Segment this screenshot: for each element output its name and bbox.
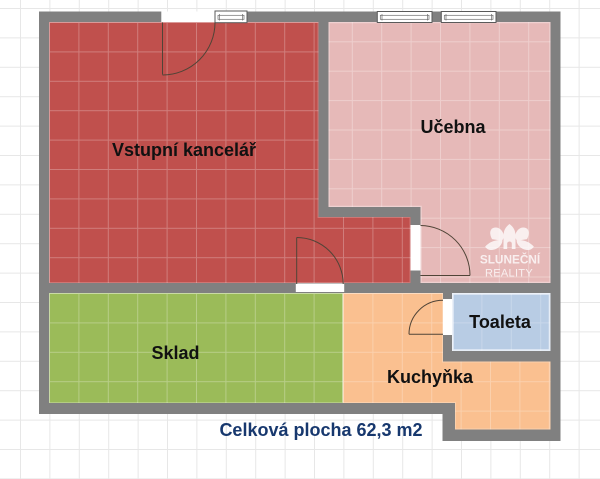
svg-text:Toaleta: Toaleta <box>469 312 532 332</box>
svg-text:SLUNEČNÍ: SLUNEČNÍ <box>480 253 541 267</box>
svg-text:Sklad: Sklad <box>151 343 199 363</box>
svg-text:Kuchyňka: Kuchyňka <box>387 367 474 387</box>
svg-text:Učebna: Učebna <box>420 117 486 137</box>
svg-text:Celková plocha 62,3 m2: Celková plocha 62,3 m2 <box>219 420 422 440</box>
svg-text:Vstupní kancelář: Vstupní kancelář <box>112 140 256 160</box>
svg-text:REALITY: REALITY <box>485 268 533 280</box>
